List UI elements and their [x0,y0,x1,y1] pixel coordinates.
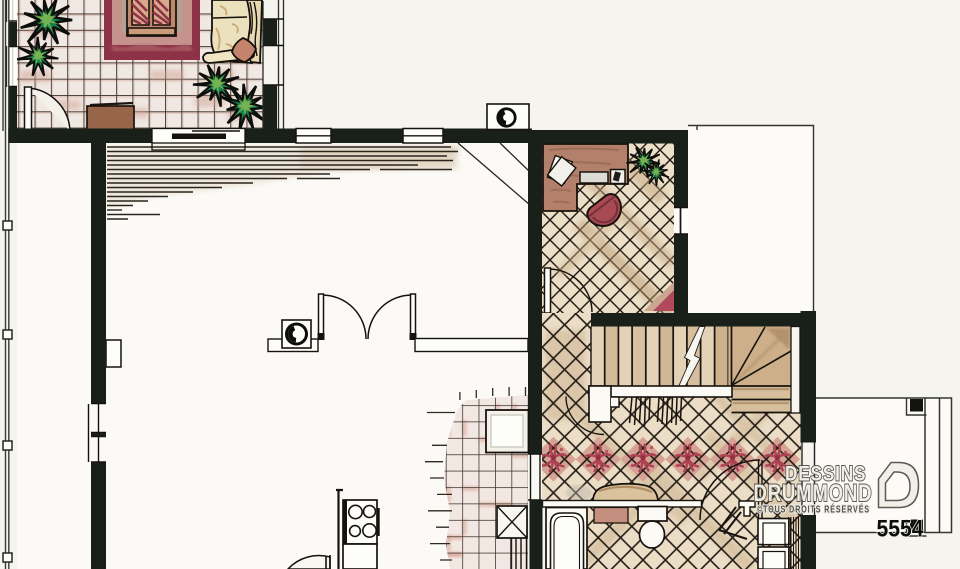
svg-text:©TOUS DROITS RÉSERVÉS: ©TOUS DROITS RÉSERVÉS [757,502,870,515]
svg-text:5554: 5554 [877,515,924,542]
